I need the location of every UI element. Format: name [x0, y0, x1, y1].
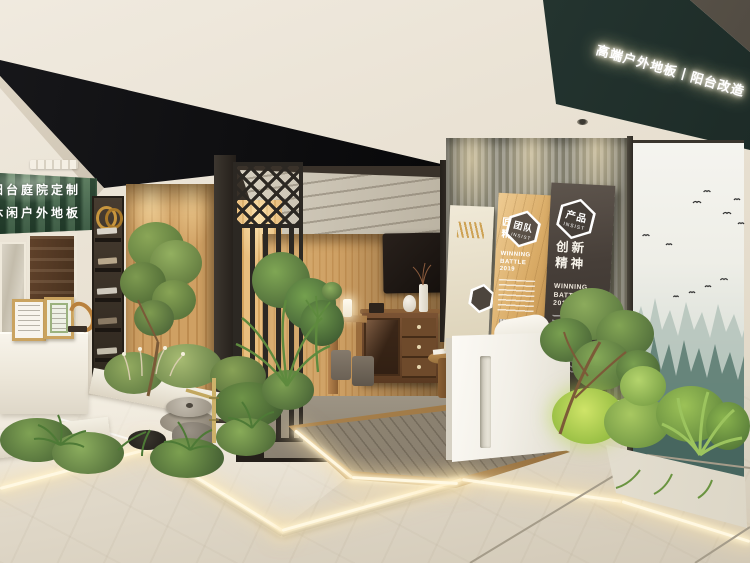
foliage-blob — [150, 438, 224, 478]
drawer-knob — [417, 345, 421, 349]
drawer-knob — [417, 365, 421, 369]
flooring-sample — [98, 257, 117, 264]
product-heading-line1: 创新 — [556, 239, 588, 257]
foliage-blob — [52, 432, 124, 474]
forest-banner: 阳台庭院定制 休闲户外地板 — [0, 173, 97, 234]
product-heading: 创新 精神 — [555, 239, 588, 273]
foliage-blob — [322, 282, 342, 300]
recessed-downlight — [577, 119, 588, 125]
display-counter — [0, 332, 88, 414]
sign-panel-cream — [444, 205, 494, 353]
foliage-blob — [216, 418, 276, 456]
certificate-text — [50, 303, 68, 333]
foliage-blob — [300, 300, 344, 346]
shelf — [95, 238, 121, 242]
decor-vase — [419, 284, 428, 312]
wall-tv-panel — [382, 232, 446, 293]
shelf — [95, 328, 121, 332]
retro-radio — [369, 303, 384, 313]
certificate-text — [18, 305, 40, 335]
lattice-diamond-pattern — [237, 166, 299, 228]
foliage-blob — [262, 370, 314, 410]
foliage-blob — [134, 300, 174, 336]
foliage-blob — [620, 366, 666, 406]
partition-groove — [480, 356, 491, 448]
shelf — [95, 268, 121, 272]
product-heading-line2: 精神 — [555, 255, 587, 273]
white-sculpture — [403, 295, 416, 312]
banner-text-line1: 阳台庭院定制 — [0, 181, 81, 198]
stool — [352, 356, 374, 386]
gold-artwork — [457, 221, 485, 238]
flooring-sample — [97, 347, 117, 354]
shelf — [95, 298, 121, 302]
foliage-blob — [706, 402, 750, 450]
banner-text-line2: 休闲户外地板 — [0, 204, 81, 221]
flooring-sample — [97, 287, 117, 294]
flooring-sample — [98, 317, 117, 324]
gold-ring-ornament — [105, 208, 123, 229]
drawer-knob — [417, 325, 421, 329]
flooring-sample — [97, 227, 117, 234]
table-lamp — [343, 299, 352, 317]
air-vent — [30, 160, 78, 169]
team-paragraph-text — [498, 279, 536, 313]
millstone-hole — [186, 403, 193, 408]
stool — [331, 350, 351, 380]
trophy-base — [68, 326, 87, 332]
showroom-render: 高端户外地板丨阳台改造 阳台庭院定制 休闲户外地板 — [0, 0, 750, 563]
team-award: WINNING BATTLE 2019 — [499, 251, 530, 275]
certificate-frame — [12, 299, 46, 341]
